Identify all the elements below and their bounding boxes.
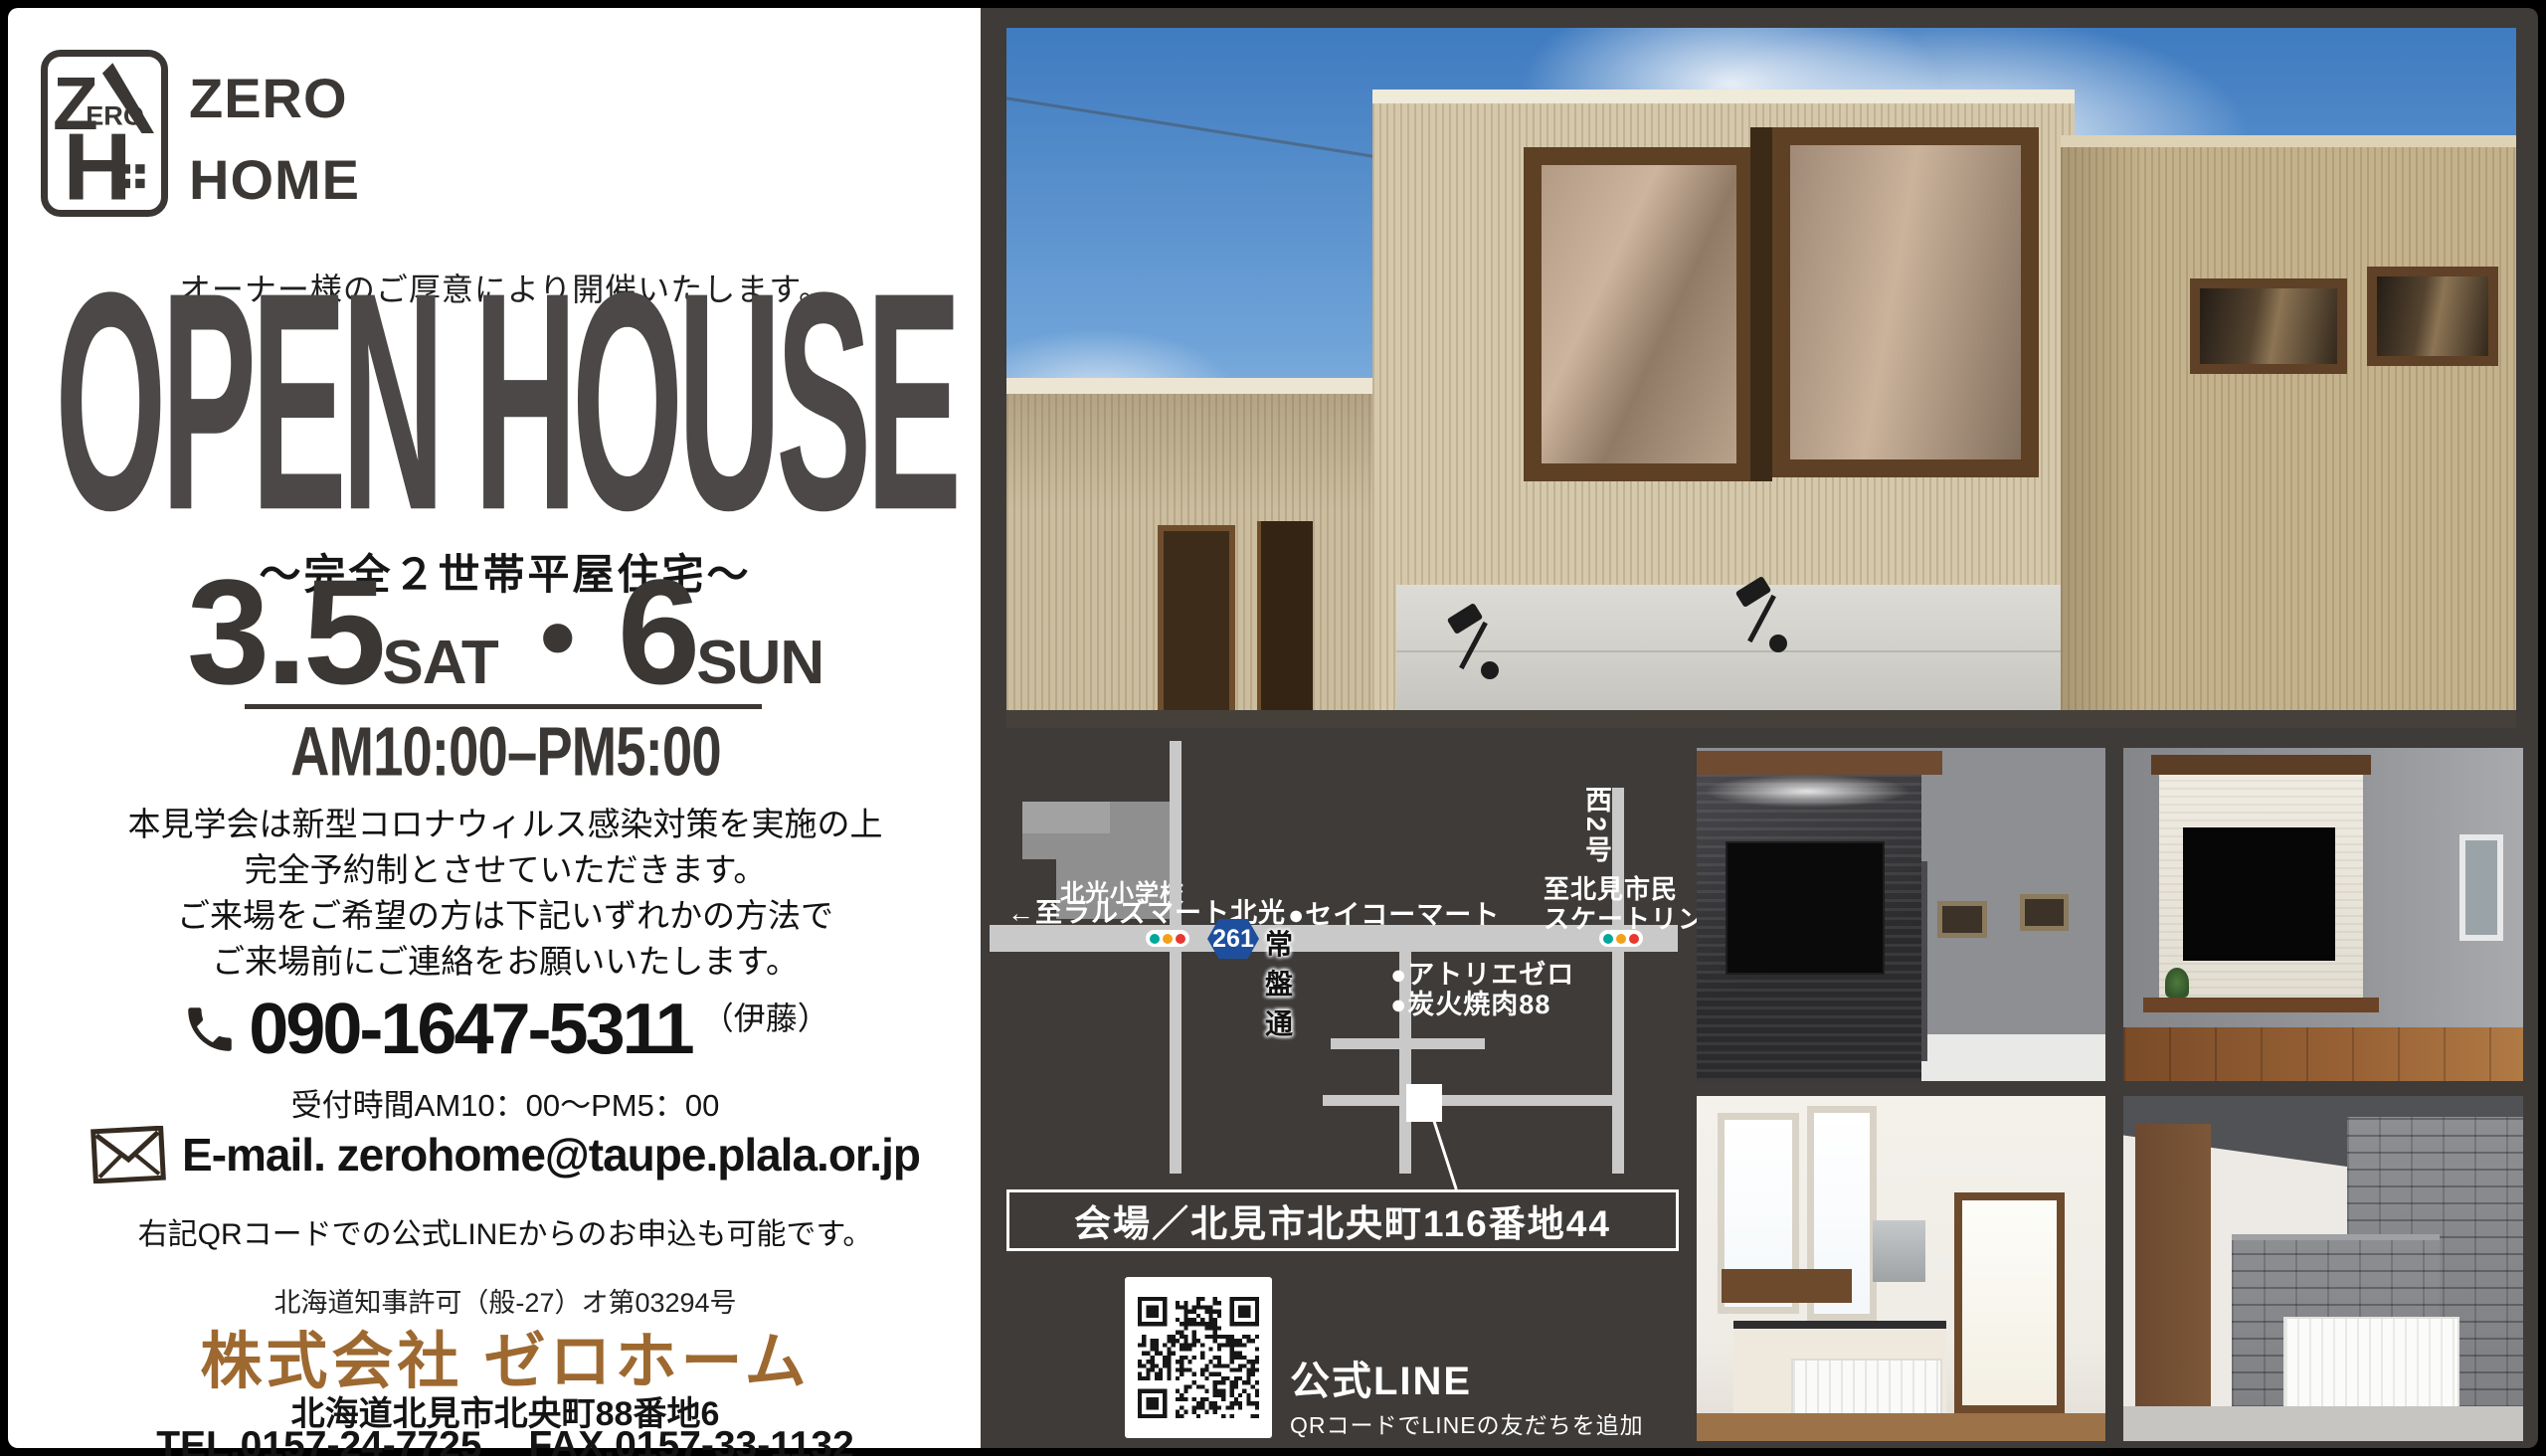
- interior-photo-kitchen: [1697, 1096, 2105, 1441]
- corner-window-right-pane: [1772, 127, 2039, 477]
- corner-window-left-pane: [1524, 147, 1754, 481]
- traffic-signal-icon: [1146, 930, 1189, 947]
- map-label-east-road: 西2号: [1577, 786, 1616, 866]
- line-qr-code: [1125, 1277, 1272, 1438]
- covid-notice: 本見学会は新型コロナウィルス感染対策を実施の上 完全予約制とさせていただきます。…: [68, 802, 943, 985]
- map-label-store: ●セイコーマート: [1288, 893, 1500, 932]
- traffic-signal-icon: [1599, 930, 1643, 947]
- svg-text:H: H: [63, 114, 131, 210]
- range-hood: [1873, 1220, 1925, 1282]
- entrance-door: [1158, 525, 1235, 728]
- zero-home-logo-mark: Z ERO H: [48, 57, 161, 210]
- corner-window-post: [1750, 127, 1772, 481]
- side-door: [1257, 521, 1313, 728]
- date-1: 3.5: [187, 557, 383, 706]
- venue-address-box: 会場／北見市北央町116番地44: [1006, 1189, 1679, 1251]
- horizontal-window: [2367, 267, 2498, 366]
- brand-name-line2: HOME: [189, 139, 487, 221]
- map-label-route-name: 常盤通: [1265, 923, 1301, 1042]
- school-building-shape: [1022, 802, 1110, 833]
- phone-number: 090-1647-5311: [249, 989, 691, 1070]
- mail-icon: [91, 1126, 166, 1183]
- company-tel-fax: TEL.0157-24-7725 FAX.0157-33-1132: [68, 1424, 943, 1456]
- date-2-weekday: SUN: [696, 633, 823, 694]
- phone-contact-name: （伊藤）: [702, 994, 829, 1039]
- open-house-flyer: Z ERO H ZERO HOME オーナー様のご厚意により開催いたします。 O…: [0, 0, 2546, 1456]
- phone-icon: [181, 1001, 239, 1058]
- wall-tv: [1726, 841, 1885, 975]
- reception-hours: 受付時間AM10：00～PM5：00: [68, 1080, 943, 1125]
- interior-photo-tv-panel-wall: [2123, 748, 2523, 1081]
- email-row: E-mail. zerohome@taupe.plala.or.jp: [68, 1126, 943, 1183]
- qr-application-note: 右記QRコードでの公式LINEからのお申込も可能です。: [68, 1209, 943, 1253]
- interior-photo-tv-accent-wall: [1697, 748, 2105, 1081]
- date-2: 6: [618, 557, 696, 706]
- brand-name-line1: ZERO: [189, 58, 487, 139]
- ground-shadow: [1006, 710, 2516, 728]
- event-dates: 3.5SAT・6SUN: [68, 557, 943, 706]
- brand-name: ZERO HOME: [189, 58, 487, 221]
- line-section-caption: QRコードでLINEの友だちを追加: [1290, 1406, 1644, 1440]
- date-underline: [245, 704, 762, 709]
- page-title: OPEN HOUSE: [68, 247, 943, 545]
- left-panel: Z ERO H ZERO HOME オーナー様のご厚意により開催いたします。 O…: [8, 8, 981, 1448]
- covid-notice-line: ご来場をご希望の方は下記いずれかの方法で: [68, 893, 943, 939]
- panel-radiator: [2283, 1317, 2459, 1413]
- phone-row: 090-1647-5311 （伊藤）: [68, 989, 943, 1070]
- house-plant: [2165, 968, 2189, 998]
- right-house-volume: [2061, 135, 2516, 728]
- map-road-minor: [1331, 1038, 1485, 1049]
- covid-notice-line: 本見学会は新型コロナウィルス感染対策を実施の上: [68, 802, 943, 847]
- panel-radiator: [1791, 1359, 1942, 1417]
- event-hours: AM10:00–PM5:00: [68, 712, 943, 786]
- horizontal-window: [2190, 278, 2347, 374]
- email-address: E-mail. zerohome@taupe.plala.or.jp: [182, 1128, 920, 1182]
- interior-photo-brick-counter: [2123, 1096, 2523, 1441]
- venue-marker: [1406, 1084, 1442, 1122]
- covid-notice-line: 完全予約制とさせていただきます。: [68, 847, 943, 893]
- spotlight-lamp: [1737, 583, 1807, 652]
- map-road-vertical-left: [1170, 741, 1182, 1174]
- wall-tv: [2183, 827, 2335, 961]
- date-1-weekday: SAT: [382, 633, 497, 694]
- exterior-house-photo: [1006, 28, 2516, 728]
- map-road-minor: [1323, 1095, 1624, 1106]
- map-label-poi-2: ●炭火焼肉88: [1390, 983, 1550, 1021]
- company-fax: FAX.0157-33-1132: [528, 1424, 853, 1456]
- line-section-title: 公式LINE: [1290, 1349, 1472, 1406]
- zero-home-logo: Z ERO H: [41, 50, 168, 217]
- company-tel: TEL.0157-24-7725: [156, 1424, 481, 1456]
- date-separator-dot: ・: [498, 583, 618, 702]
- covid-notice-line: ご来場前にご連絡をお願いいたします。: [68, 939, 943, 985]
- spotlight-lamp: [1449, 610, 1519, 679]
